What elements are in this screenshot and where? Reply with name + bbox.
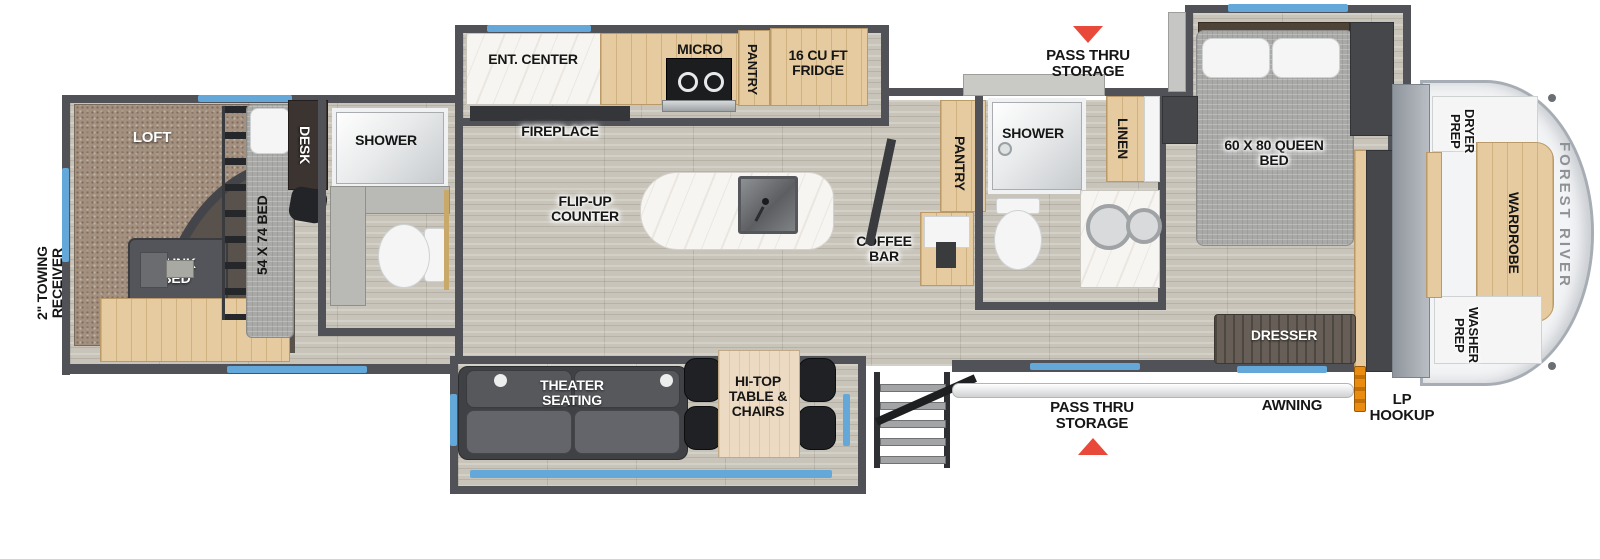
bath-toilet	[994, 210, 1042, 270]
hitop-label: HI-TOP TABLE & CHAIRS	[722, 374, 794, 419]
wall-bath-left	[975, 88, 983, 310]
awning-label: AWNING	[1252, 398, 1332, 414]
hitch-icon	[140, 252, 168, 288]
awning-bar	[952, 383, 1354, 398]
hall-pantry-label: PANTRY	[952, 122, 967, 204]
entry-step-4	[880, 438, 946, 446]
window-top-rear	[198, 95, 292, 102]
vanity-sink-right	[1126, 208, 1162, 244]
towing-receiver-label: 2" TOWING RECEIVER	[35, 221, 65, 345]
bed54-label: 54 X 74 BED	[255, 150, 270, 320]
window-bedroom-slide	[1228, 4, 1348, 12]
rear-bath-door	[444, 190, 449, 290]
fireplace	[470, 106, 630, 121]
theater-label: THEATER SEATING	[528, 378, 616, 408]
pass-thru-top-label: PASS THRU STORAGE	[1038, 48, 1138, 80]
rear-shower-label: SHOWER	[340, 133, 432, 148]
hitop-chair-br	[798, 406, 836, 450]
hitop-chair-bl	[684, 406, 722, 450]
dresser-label: DRESSER	[1244, 328, 1324, 343]
cooktop-burner-left	[678, 72, 698, 92]
theater-seat-left	[466, 410, 572, 454]
pass-thru-bottom-arrow-icon	[1078, 438, 1108, 455]
lp-hookup-label: LP HOOKUP	[1360, 392, 1444, 424]
dryer-prep-label: DRYER PREP	[1448, 100, 1476, 162]
queen-bed-label: 60 X 80 QUEEN BED	[1216, 138, 1332, 168]
washer-prep-counter	[1434, 296, 1542, 364]
bedroom-slide-trim	[1168, 12, 1186, 92]
window-living-right	[843, 394, 850, 446]
window-bottom-bedroom	[1237, 366, 1327, 373]
fireplace-label: FIREPLACE	[512, 124, 608, 139]
loft-label: LOFT	[112, 130, 192, 146]
ent-center-counter	[466, 33, 602, 105]
window-living-bottom	[470, 470, 832, 478]
linen-label: LINEN	[1115, 106, 1130, 172]
pillow-left	[1202, 38, 1270, 78]
island-faucet	[762, 198, 769, 205]
micro-label: MICRO	[662, 42, 738, 57]
window-kitchen-slide	[487, 25, 591, 32]
hitop-chair-tl	[684, 358, 722, 402]
washer-prep-label: WASHER PREP	[1452, 300, 1480, 370]
front-cabinet-trim	[1426, 152, 1442, 298]
rear-vanity-side	[330, 186, 366, 306]
island-sink	[738, 176, 798, 234]
flip-up-counter-label: FLIP-UP COUNTER	[538, 194, 632, 224]
entry-step-5	[880, 456, 946, 464]
wall-bath-bottom	[975, 302, 1166, 310]
linen-shelf	[1144, 96, 1160, 182]
nightstand-left	[1162, 96, 1198, 144]
cooktop-burner-right	[704, 72, 724, 92]
cap-screw-top	[1548, 94, 1556, 102]
pass-thru-bottom-label: PASS THRU STORAGE	[1042, 400, 1142, 432]
cupholder-right	[660, 374, 673, 387]
bunk-room-pillow	[250, 108, 290, 154]
theater-seat-right	[574, 410, 680, 454]
desk-label: DESK	[297, 112, 312, 178]
kitchen-island	[640, 172, 834, 250]
cap-screw-bottom	[1548, 362, 1556, 370]
front-cap-band	[1392, 84, 1430, 378]
entry-step-3	[880, 420, 946, 428]
window-bottom-rear	[227, 366, 367, 373]
range-front	[662, 100, 736, 112]
brand-logo: FOREST RIVER	[1556, 142, 1572, 342]
wall-rear-bath-left	[318, 95, 326, 335]
rear-toilet	[378, 224, 430, 288]
hitop-chair-tr	[798, 358, 836, 402]
ent-center-label: ENT. CENTER	[470, 52, 596, 67]
rv-floorplan: LOFT BUNK BED 54 X 74 BED DESK SHOWER EN…	[0, 0, 1600, 559]
pillow-right	[1272, 38, 1340, 78]
hitch-bar-icon	[166, 260, 194, 278]
main-shower-label: SHOWER	[990, 126, 1076, 141]
window-bottom-mid	[1030, 363, 1140, 370]
cupholder-left	[494, 374, 507, 387]
front-wardrobe-label: WARDROBE	[1506, 158, 1521, 308]
window-living-left	[450, 394, 457, 446]
coffee-bar-label: COFFEE BAR	[846, 234, 922, 264]
wall-rear-bath-bottom	[318, 328, 463, 336]
fridge-label: 16 CU FT FRIDGE	[778, 48, 858, 78]
nightstand-right	[1350, 22, 1394, 136]
coffee-maker	[936, 242, 956, 268]
kitchen-pantry-label: PANTRY	[745, 36, 759, 102]
shower-drain	[998, 142, 1012, 156]
pass-thru-top-arrow-icon	[1073, 26, 1103, 43]
